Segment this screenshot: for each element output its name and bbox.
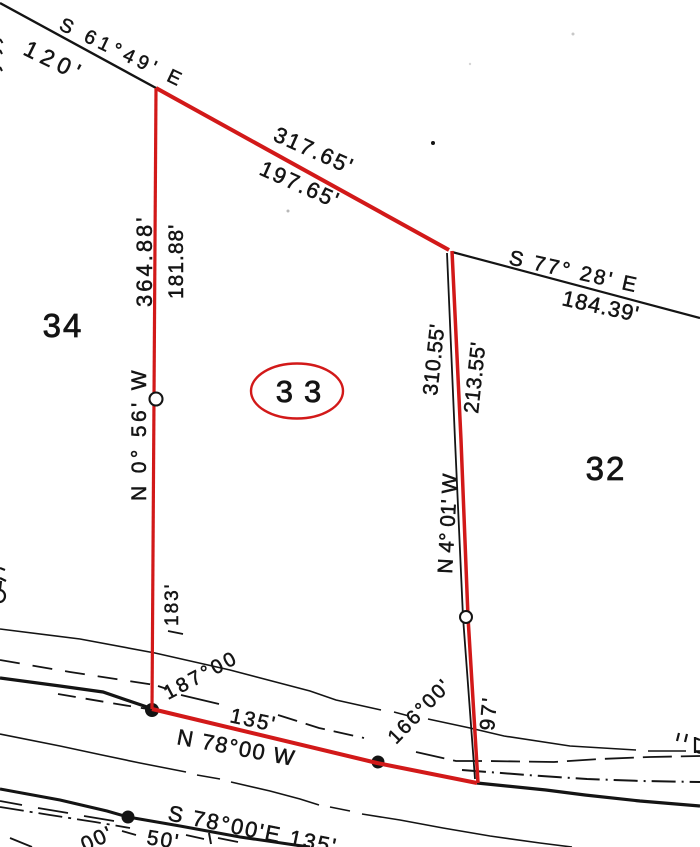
svg-text:34: 34 <box>43 307 84 344</box>
svg-text:183': 183' <box>162 583 183 626</box>
svg-text:32: 32 <box>586 450 627 487</box>
svg-text:181.88': 181.88' <box>165 224 188 299</box>
svg-text:364.88': 364.88' <box>132 215 157 308</box>
svg-text:33: 33 <box>276 374 332 409</box>
svg-text:N 0° 56' W: N 0° 56' W <box>128 367 151 501</box>
svg-text:97': 97' <box>476 695 502 732</box>
